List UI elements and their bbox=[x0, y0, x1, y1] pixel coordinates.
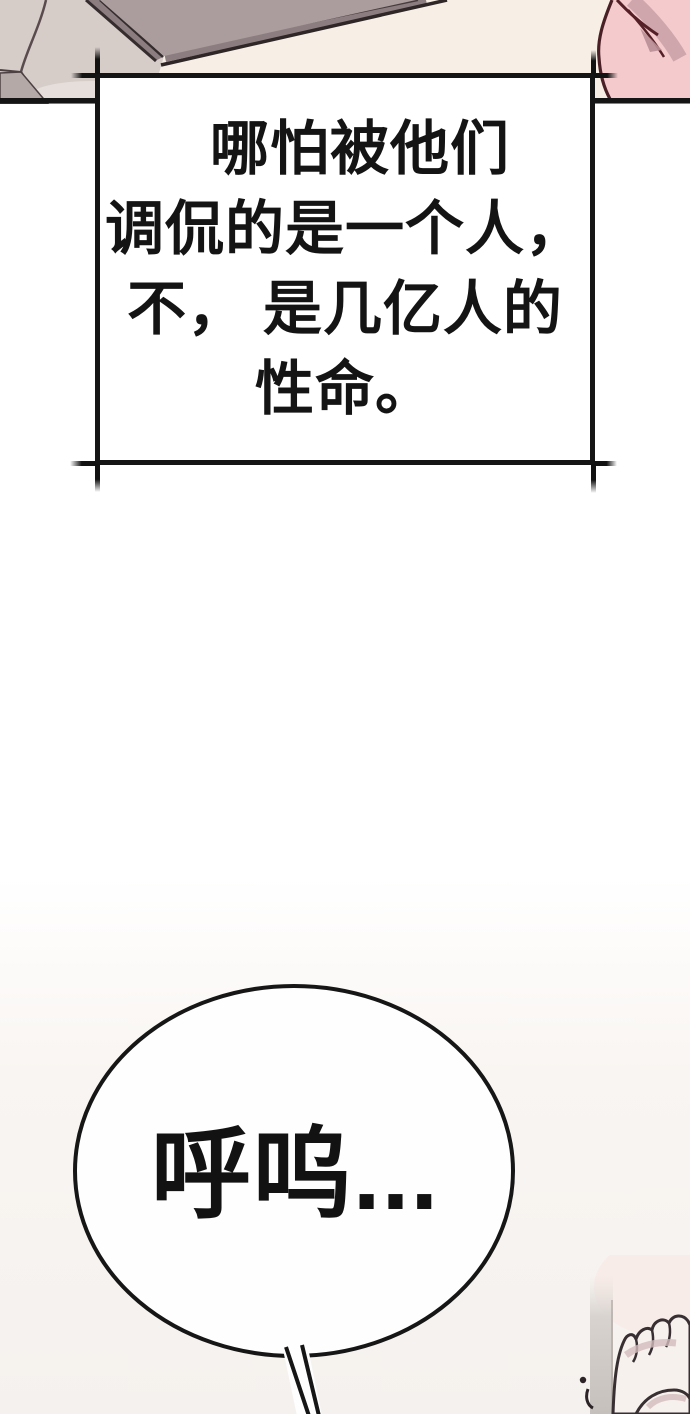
box-corner-stroke bbox=[591, 464, 596, 493]
ink-dot bbox=[580, 1377, 586, 1383]
bottom-right-art bbox=[540, 1255, 690, 1414]
narration-line-3: 不， 是几亿人的 bbox=[127, 269, 563, 349]
box-corner-stroke bbox=[95, 47, 100, 74]
narration-line-4: 性命。 bbox=[255, 349, 435, 429]
narration-box: 哪怕被他们 调侃的是一个人， 不， 是几亿人的 性命。 bbox=[95, 73, 595, 465]
box-corner-stroke bbox=[594, 73, 618, 78]
speech-bubble-text: 呼呜... bbox=[70, 1110, 520, 1240]
box-corner-stroke bbox=[594, 461, 617, 466]
pole-shape bbox=[590, 1275, 613, 1414]
box-corner-stroke bbox=[591, 50, 596, 74]
narration-line-1: 哪怕被他们 bbox=[210, 109, 510, 189]
narration-line-2: 调侃的是一个人， bbox=[105, 189, 585, 269]
comic-page: 哪怕被他们 调侃的是一个人， 不， 是几亿人的 性命。 呼呜... bbox=[0, 0, 690, 1414]
box-corner-stroke bbox=[71, 73, 96, 78]
box-corner-stroke bbox=[70, 461, 96, 466]
box-corner-stroke bbox=[95, 464, 100, 492]
